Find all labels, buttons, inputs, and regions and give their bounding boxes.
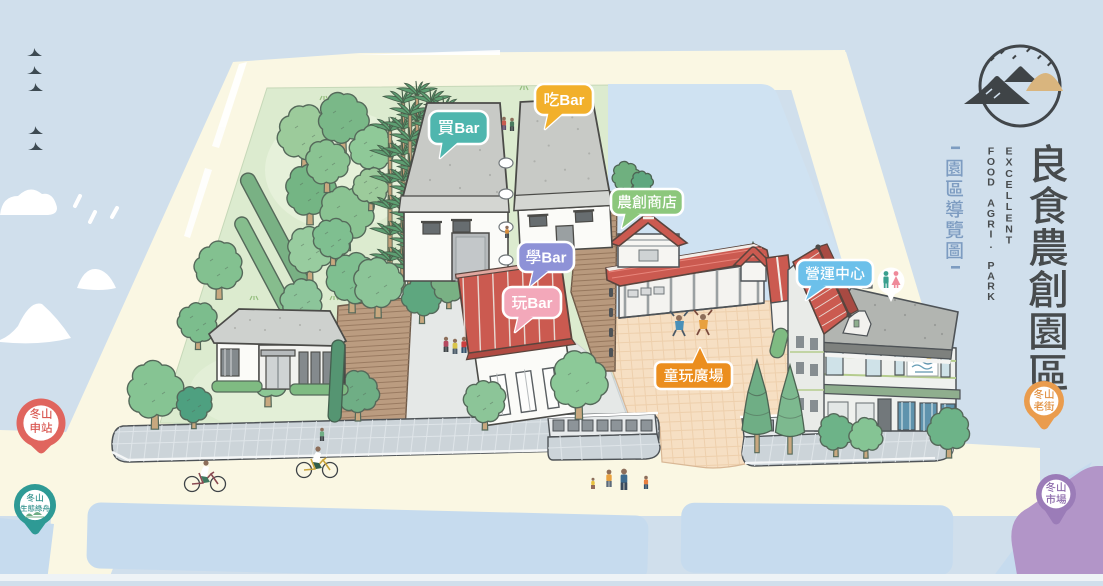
svg-text:K: K	[987, 291, 995, 303]
svg-text:E: E	[1005, 179, 1012, 191]
svg-text:L: L	[1006, 201, 1013, 213]
svg-text:E: E	[1005, 212, 1012, 224]
svg-text:D: D	[987, 177, 995, 189]
svg-text:Bar: Bar	[541, 249, 566, 266]
svg-text:T: T	[1006, 235, 1013, 247]
svg-text:Bar: Bar	[454, 120, 479, 137]
svg-text:Bar: Bar	[559, 92, 584, 109]
svg-text:E: E	[1005, 146, 1012, 158]
svg-text:.: .	[990, 239, 993, 251]
svg-text:Bar: Bar	[527, 295, 552, 312]
